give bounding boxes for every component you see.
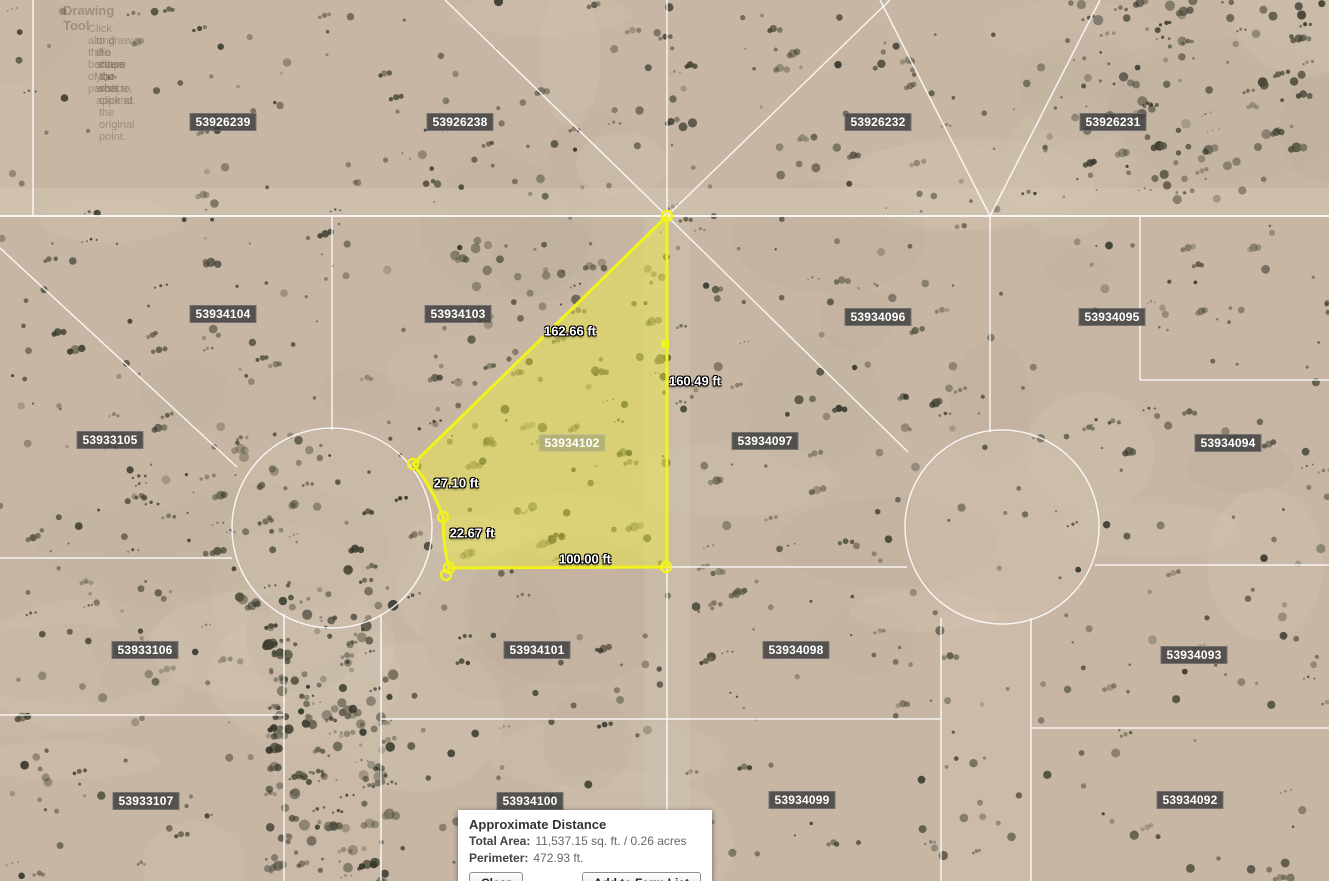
parcel-label-53934102: 53934102 (539, 434, 606, 452)
add-to-farm-list-button[interactable]: Add to Farm List (582, 872, 701, 881)
parcel-label-53933106: 53933106 (112, 641, 179, 659)
measure-label: 22.67 ft (450, 526, 495, 541)
parcel-label-53934104: 53934104 (190, 305, 257, 323)
parcel-label-53934096: 53934096 (845, 308, 912, 326)
parcel-label-53934099: 53934099 (769, 791, 836, 809)
panel-title: Approximate Distance (469, 816, 701, 833)
parcel-label-53934103: 53934103 (425, 305, 492, 323)
measure-label: 162.66 ft (544, 324, 596, 339)
parcel-label-53926239: 53926239 (190, 113, 257, 131)
parcel-label-53934097: 53934097 (732, 432, 799, 450)
parcel-label-53934092: 53934092 (1157, 791, 1224, 809)
parcel-label-53934098: 53934098 (763, 641, 830, 659)
parcel-label-53926238: 53926238 (427, 113, 494, 131)
total-area-row: Total Area:11,537.15 sq. ft. / 0.26 acre… (469, 833, 701, 850)
parcel-label-53933107: 53933107 (113, 792, 180, 810)
measure-label: 100.00 ft (559, 552, 611, 567)
clear-button[interactable]: Clear (469, 872, 523, 881)
parcel-label-53933105: 53933105 (77, 431, 144, 449)
parcel-label-53926232: 53926232 (845, 113, 912, 131)
perimeter-label: Perimeter: (469, 851, 528, 865)
info-panel: Approximate Distance Total Area:11,537.1… (458, 810, 712, 881)
perimeter-row: Perimeter:472.93 ft. (469, 850, 701, 867)
total-area-value: 11,537.15 sq. ft. / 0.26 acres (535, 834, 686, 848)
parcel-label-53934095: 53934095 (1079, 308, 1146, 326)
total-area-label: Total Area: (469, 834, 530, 848)
satellite-map[interactable] (0, 0, 1329, 881)
map-canvas[interactable]: Drawing Tool Click along the borders of … (0, 0, 1329, 881)
parcel-label-53934100: 53934100 (497, 792, 564, 810)
parcel-label-53934093: 53934093 (1161, 646, 1228, 664)
perimeter-value: 472.93 ft. (533, 851, 583, 865)
measure-label: 160.49 ft (669, 374, 721, 389)
parcel-label-53934101: 53934101 (504, 641, 571, 659)
parcel-label-53934094: 53934094 (1195, 434, 1262, 452)
measure-label: 27.10 ft (434, 476, 479, 491)
vertex-handle[interactable] (661, 340, 669, 348)
parcel-label-53926231: 53926231 (1080, 113, 1147, 131)
